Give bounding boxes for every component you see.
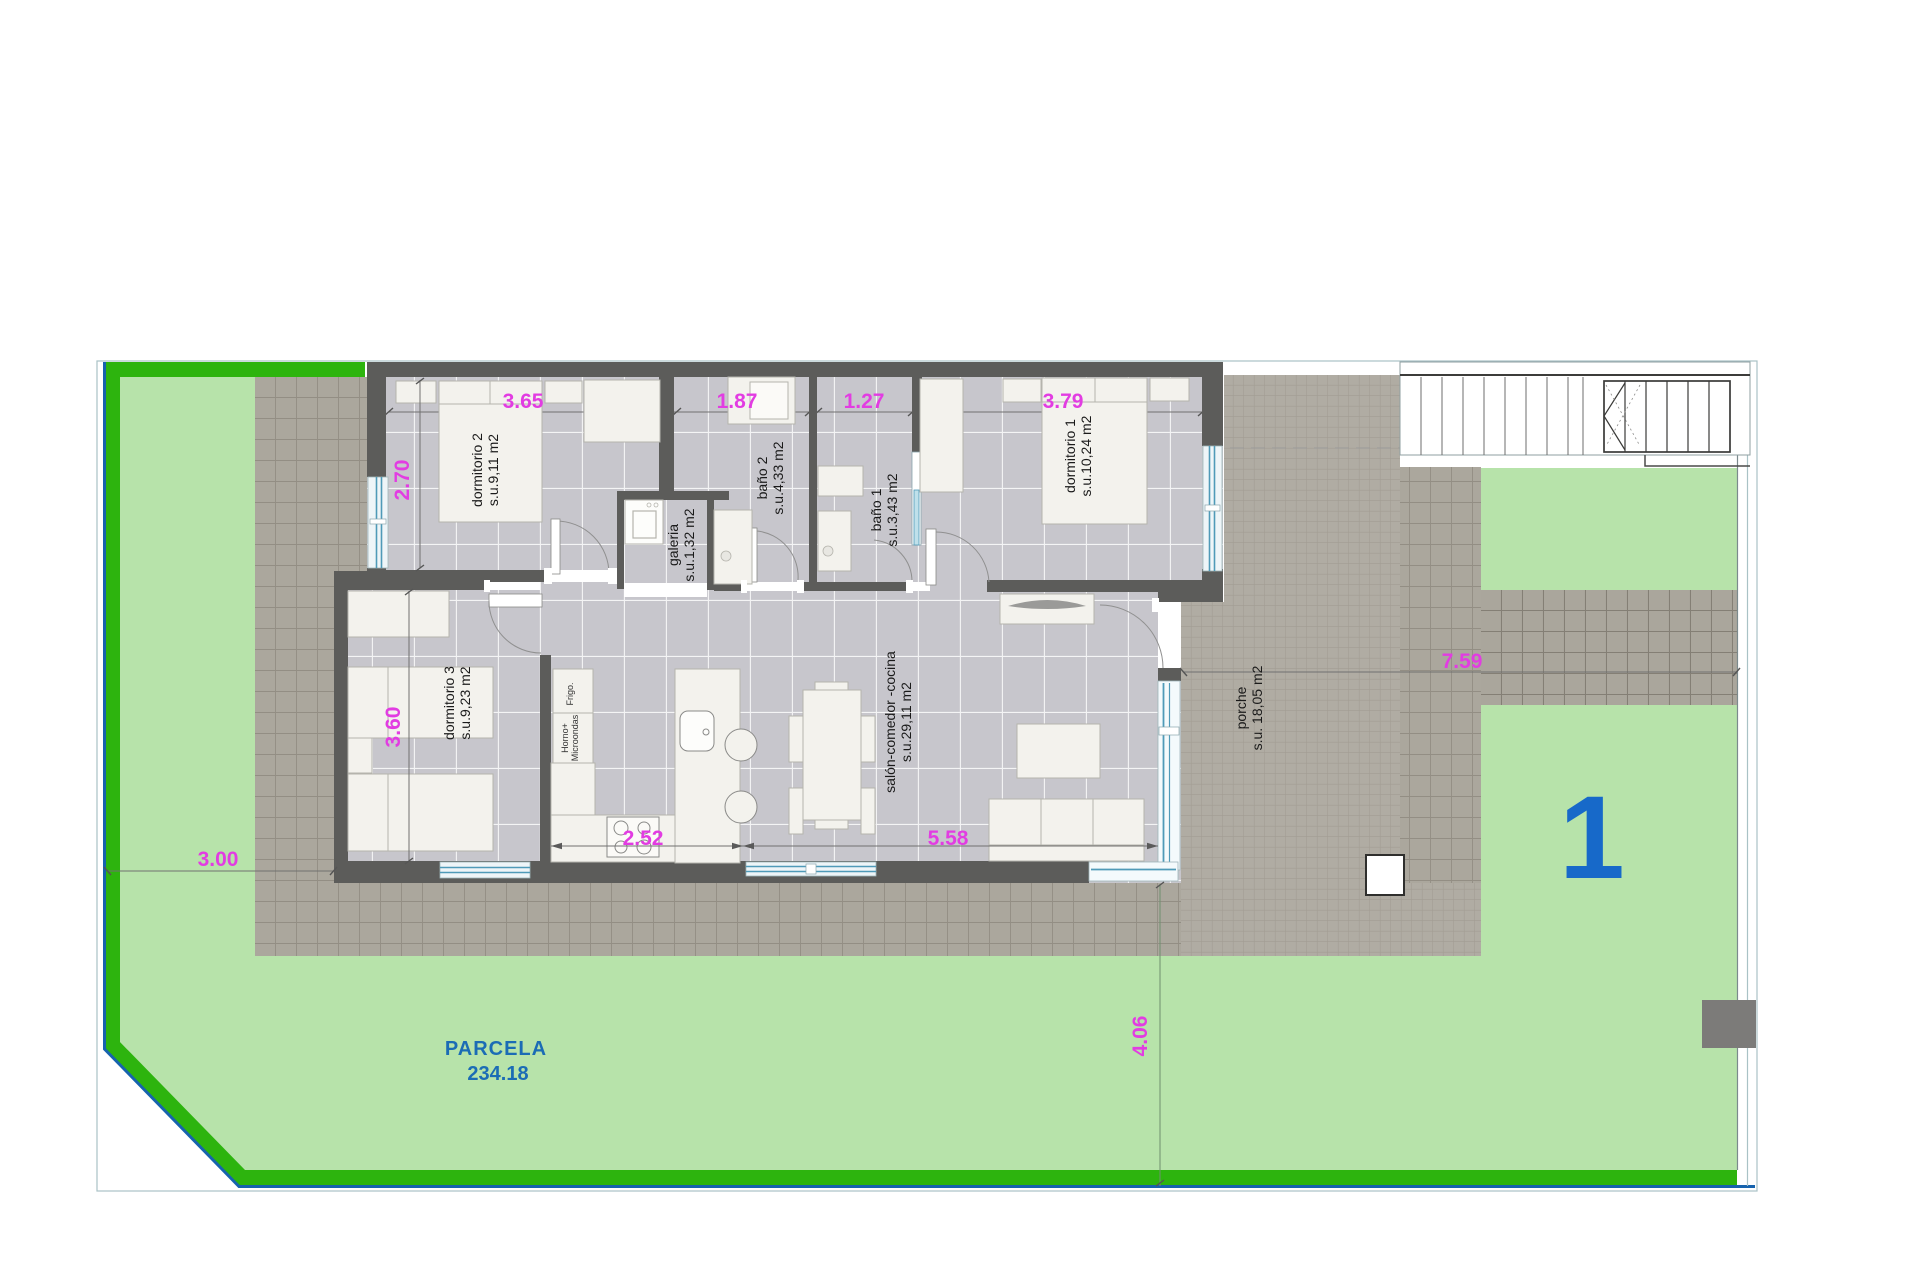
svg-text:s.u.10,24 m2: s.u.10,24 m2 [1078,415,1094,496]
svg-text:dormitorio 2: dormitorio 2 [469,433,485,507]
svg-text:3.65: 3.65 [503,390,544,413]
svg-text:4.06: 4.06 [1129,1016,1152,1057]
svg-text:1: 1 [1559,772,1625,904]
svg-text:dormitorio 1: dormitorio 1 [1062,419,1078,493]
svg-text:Microondas: Microondas [570,714,580,761]
svg-text:5.58: 5.58 [928,827,969,850]
svg-text:7.59: 7.59 [1442,650,1483,673]
svg-text:galeria: galeria [665,524,681,566]
svg-text:salón-comedor -cocina: salón-comedor -cocina [882,651,898,793]
svg-text:PARCELA: PARCELA [445,1038,547,1060]
svg-text:Horno+: Horno+ [560,723,570,753]
svg-text:1.27: 1.27 [844,390,885,413]
svg-text:Frigo.: Frigo. [565,682,575,705]
svg-text:3.60: 3.60 [382,707,405,748]
svg-text:s.u.29,11 m2: s.u.29,11 m2 [898,682,914,762]
svg-text:s.u.9,11 m2: s.u.9,11 m2 [485,434,501,506]
svg-text:s.u.4,33 m2: s.u.4,33 m2 [770,441,786,514]
svg-text:2.52: 2.52 [623,827,664,850]
svg-text:s.u.1,32 m2: s.u.1,32 m2 [681,508,697,581]
svg-text:porche: porche [1233,686,1249,729]
svg-text:3.00: 3.00 [198,848,239,871]
svg-text:234.18: 234.18 [467,1063,528,1085]
svg-text:2.70: 2.70 [391,460,414,501]
svg-text:3.79: 3.79 [1043,390,1084,413]
svg-text:baño 2: baño 2 [754,456,770,499]
svg-text:s.u. 18,05 m2: s.u. 18,05 m2 [1249,665,1265,750]
svg-text:dormitorio 3: dormitorio 3 [441,666,457,740]
svg-text:s.u.3,43 m2: s.u.3,43 m2 [884,473,900,546]
svg-text:1.87: 1.87 [717,390,758,413]
svg-text:s.u.9,23 m2: s.u.9,23 m2 [457,666,473,739]
svg-text:baño 1: baño 1 [868,488,884,531]
